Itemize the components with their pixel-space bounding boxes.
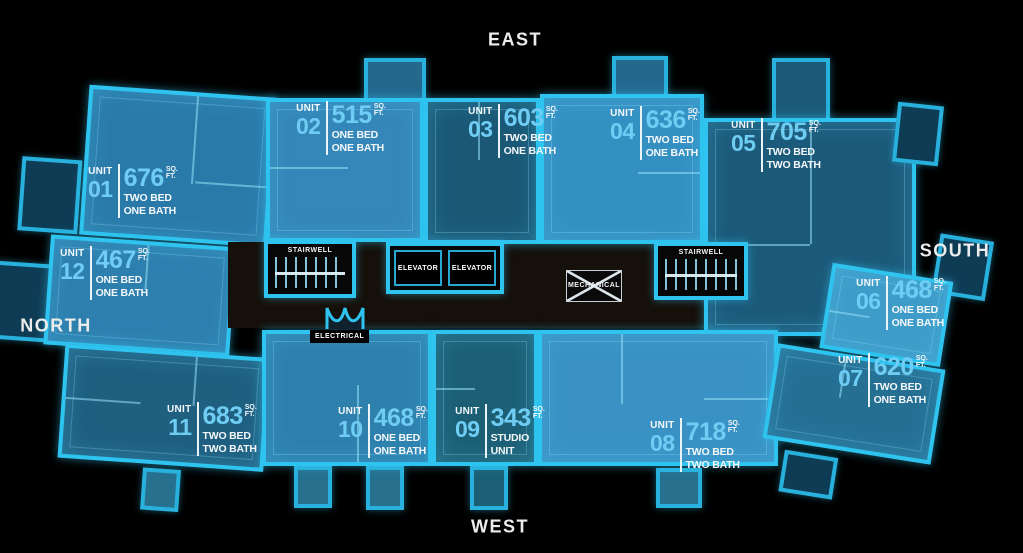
unit-number: 12 bbox=[60, 260, 85, 283]
unit-ft: FT. bbox=[934, 285, 946, 292]
unit-number: 07 bbox=[838, 367, 863, 390]
unit-sq: SQ. bbox=[546, 106, 558, 113]
unit-ft: FT. bbox=[728, 427, 740, 434]
unit-type-2: ONE BATH bbox=[504, 146, 558, 157]
balcony bbox=[892, 102, 944, 166]
compass-west: WEST bbox=[471, 517, 529, 538]
unit-type-2: UNIT bbox=[491, 446, 545, 457]
unit-sqft: 718 bbox=[686, 420, 726, 445]
unit-10-label: UNIT10 468SQ.FT. ONE BED ONE BATH bbox=[338, 404, 428, 458]
interior-wall bbox=[270, 167, 348, 169]
unit-ft: FT. bbox=[533, 413, 545, 420]
unit-number: 05 bbox=[731, 132, 756, 155]
label-divider bbox=[498, 104, 500, 158]
unit-type-2: ONE BATH bbox=[124, 206, 178, 217]
unit-sqft: 636 bbox=[646, 108, 686, 133]
unit-08-label: UNIT08 718SQ.FT. TWO BED TWO BATH bbox=[650, 418, 740, 472]
unit-type-1: ONE BED bbox=[892, 305, 946, 316]
unit-ft: FT. bbox=[138, 255, 150, 262]
unit-03-label: UNIT03 603SQ.FT. TWO BED ONE BATH bbox=[468, 104, 558, 158]
unit-02-label: UNIT02 515SQ.FT. ONE BED ONE BATH bbox=[296, 101, 386, 155]
unit-type-2: TWO BATH bbox=[767, 160, 821, 171]
unit-sq: SQ. bbox=[688, 108, 700, 115]
unit-number: 06 bbox=[856, 290, 881, 313]
mechanical-room: MECHANICAL bbox=[566, 270, 622, 302]
unit-04-label: UNIT04 636SQ.FT. TWO BED ONE BATH bbox=[610, 106, 700, 160]
label-divider bbox=[485, 404, 487, 458]
unit-sq: SQ. bbox=[416, 406, 428, 413]
electrical-label: ELECTRICAL bbox=[310, 330, 369, 343]
interior-wall bbox=[191, 96, 199, 184]
unit-type-2: TWO BATH bbox=[203, 444, 257, 455]
unit-type-1: TWO BED bbox=[874, 382, 928, 393]
unit-01-label: UNIT01 676SQ.FT. TWO BED ONE BATH bbox=[88, 164, 178, 218]
unit-number: 10 bbox=[338, 418, 363, 441]
unit-ft: FT. bbox=[245, 411, 257, 418]
unit-sq: SQ. bbox=[374, 103, 386, 110]
balcony bbox=[656, 468, 702, 508]
stairwell-left-label: STAIRWELL bbox=[268, 247, 352, 254]
label-divider bbox=[90, 246, 92, 300]
unit-number: 01 bbox=[88, 178, 113, 201]
unit-11-label: UNIT11 683SQ.FT. TWO BED TWO BATH bbox=[167, 402, 257, 456]
unit-sqft: 468 bbox=[374, 406, 414, 431]
unit-sq: SQ. bbox=[809, 120, 821, 127]
unit-type-1: TWO BED bbox=[203, 431, 257, 442]
unit-type-2: ONE BATH bbox=[332, 143, 386, 154]
stair-treads-icon bbox=[275, 257, 345, 288]
unit-ft: FT. bbox=[916, 362, 928, 369]
unit-sqft: 620 bbox=[874, 355, 914, 380]
unit-type-1: ONE BED bbox=[374, 433, 428, 444]
label-divider bbox=[326, 101, 328, 155]
interior-wall bbox=[192, 357, 197, 406]
unit-sq: SQ. bbox=[916, 355, 928, 362]
electrical-door-icon bbox=[324, 304, 366, 330]
elevator-left-box: ELEVATOR bbox=[394, 250, 442, 286]
unit-ft: FT. bbox=[374, 110, 386, 117]
label-divider bbox=[368, 404, 370, 458]
unit-type-1: ONE BED bbox=[96, 275, 150, 286]
stairwell-right: STAIRWELL bbox=[654, 242, 748, 300]
stairwell-right-label: STAIRWELL bbox=[658, 249, 744, 256]
compass-north: NORTH bbox=[20, 316, 92, 337]
unit-sq: SQ. bbox=[166, 166, 178, 173]
unit-sqft: 676 bbox=[124, 166, 164, 191]
unit-sqft: 683 bbox=[203, 404, 243, 429]
unit-number: 04 bbox=[610, 120, 635, 143]
compass-south: SOUTH bbox=[920, 241, 991, 262]
unit-09-label: UNIT09 343SQ.FT. STUDIO UNIT bbox=[455, 404, 545, 458]
balcony bbox=[366, 466, 404, 510]
label-divider bbox=[640, 106, 642, 160]
unit-type-2: ONE BATH bbox=[374, 446, 428, 457]
interior-wall bbox=[66, 397, 141, 404]
unit-type-1: ONE BED bbox=[332, 130, 386, 141]
unit-type-1: TWO BED bbox=[124, 193, 178, 204]
label-divider bbox=[197, 402, 199, 456]
unit-sqft: 468 bbox=[892, 278, 932, 303]
unit-sqft: 705 bbox=[767, 120, 807, 145]
unit-ft: FT. bbox=[688, 115, 700, 122]
unit-type-2: ONE BATH bbox=[892, 318, 946, 329]
interior-wall bbox=[621, 334, 623, 404]
interior-wall bbox=[638, 172, 700, 174]
label-divider bbox=[886, 276, 888, 330]
unit-sqft: 467 bbox=[96, 248, 136, 273]
balcony bbox=[772, 58, 830, 122]
unit-ft: FT. bbox=[809, 127, 821, 134]
stair-treads-icon bbox=[665, 259, 737, 290]
balcony bbox=[778, 450, 838, 500]
floor-plan: EAST NORTH SOUTH WEST bbox=[0, 0, 1023, 553]
unit-sqft: 515 bbox=[332, 103, 372, 128]
unit-12-label: UNIT12 467SQ.FT. ONE BED ONE BATH bbox=[60, 246, 150, 300]
unit-number: 08 bbox=[650, 432, 675, 455]
unit-type-2: ONE BATH bbox=[874, 395, 928, 406]
unit-sq: SQ. bbox=[934, 278, 946, 285]
balcony bbox=[140, 467, 181, 512]
label-divider bbox=[118, 164, 120, 218]
balcony bbox=[294, 466, 332, 508]
unit-type-1: TWO BED bbox=[504, 133, 558, 144]
elevator-lobby: ELEVATOR ELEVATOR bbox=[386, 242, 504, 294]
unit-number: 09 bbox=[455, 418, 480, 441]
unit-type-2: ONE BATH bbox=[96, 288, 150, 299]
unit-05-label: UNIT05 705SQ.FT. TWO BED TWO BATH bbox=[731, 118, 821, 172]
unit-type-1: TWO BED bbox=[686, 447, 740, 458]
unit-sq: SQ. bbox=[533, 406, 545, 413]
unit-ft: FT. bbox=[416, 413, 428, 420]
compass-east: EAST bbox=[488, 30, 542, 51]
unit-sq: SQ. bbox=[138, 248, 150, 255]
unit-sqft: 343 bbox=[491, 406, 531, 431]
unit-type-1: TWO BED bbox=[646, 135, 700, 146]
unit-ft: FT. bbox=[166, 173, 178, 180]
mechanical-label: MECHANICAL bbox=[567, 282, 621, 289]
interior-wall bbox=[436, 388, 475, 390]
unit-sqft: 603 bbox=[504, 106, 544, 131]
unit-number: 02 bbox=[296, 115, 321, 138]
unit-type-2: ONE BATH bbox=[646, 148, 700, 159]
unit-sq: SQ. bbox=[728, 420, 740, 427]
unit-ft: FT. bbox=[546, 113, 558, 120]
unit-type-1: TWO BED bbox=[767, 147, 821, 158]
unit-type-1: STUDIO bbox=[491, 433, 545, 444]
balcony bbox=[17, 156, 82, 234]
label-divider bbox=[761, 118, 763, 172]
elevator-right-box: ELEVATOR bbox=[448, 250, 496, 286]
label-divider bbox=[868, 353, 870, 407]
unit-07-label: UNIT07 620SQ.FT. TWO BED ONE BATH bbox=[838, 353, 928, 407]
unit-sq: SQ. bbox=[245, 404, 257, 411]
label-divider bbox=[680, 418, 682, 472]
unit-06-label: UNIT06 468SQ.FT. ONE BED ONE BATH bbox=[856, 276, 946, 330]
unit-number: 03 bbox=[468, 118, 493, 141]
unit-type-2: TWO BATH bbox=[686, 460, 740, 471]
balcony bbox=[470, 466, 508, 510]
unit-number: 11 bbox=[168, 416, 191, 439]
stairwell-left: STAIRWELL bbox=[264, 240, 356, 298]
